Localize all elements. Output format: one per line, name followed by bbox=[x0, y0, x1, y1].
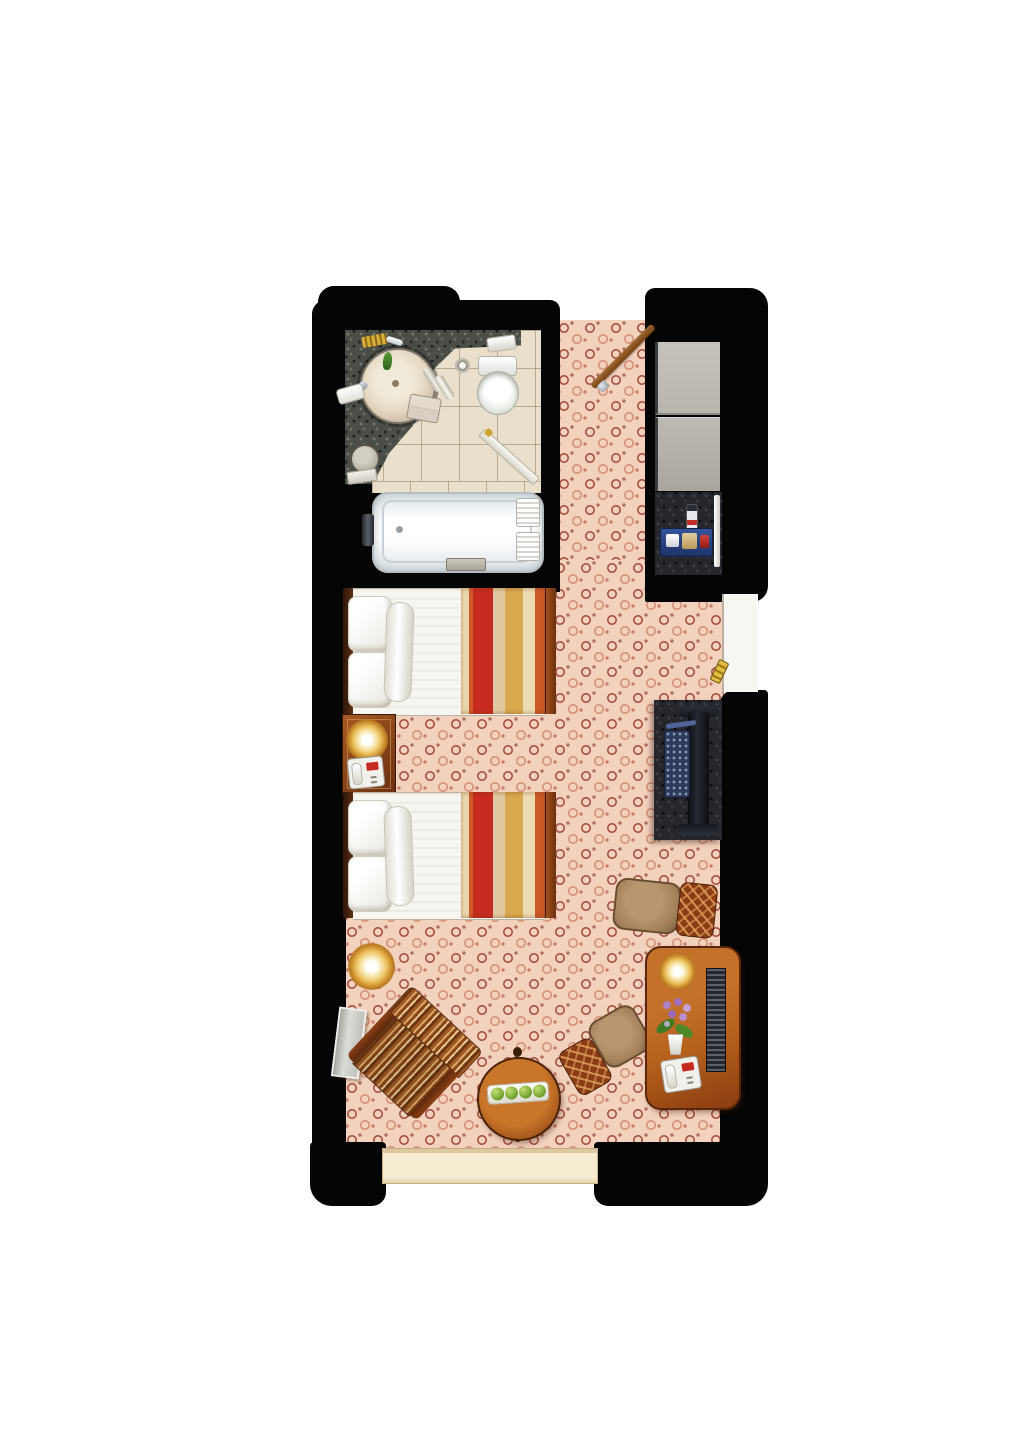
tub-tray bbox=[446, 558, 486, 571]
orchid-flowers bbox=[660, 998, 694, 1032]
bed-1-runner bbox=[461, 588, 545, 714]
apple-1 bbox=[491, 1087, 505, 1101]
closet-door-upper bbox=[655, 342, 720, 415]
tv-keyboard bbox=[664, 730, 690, 798]
bed-2-footboard bbox=[545, 792, 556, 918]
folded-towels bbox=[406, 393, 442, 423]
nightstand-lamp bbox=[346, 719, 388, 761]
tub-faucet bbox=[362, 514, 374, 546]
tv-cap-bottom bbox=[678, 824, 718, 835]
tray-red-can bbox=[700, 535, 709, 548]
tub-towel-1 bbox=[516, 498, 540, 527]
tub-towel-2 bbox=[516, 532, 540, 561]
minibar-tray bbox=[660, 528, 713, 557]
wall-bottom-left-block bbox=[310, 1142, 386, 1206]
bed-1-footboard bbox=[545, 588, 556, 714]
side-chair-back bbox=[675, 882, 718, 940]
tv-screen-bar bbox=[688, 712, 709, 830]
connecting-door bbox=[722, 594, 758, 692]
side-chair-seat bbox=[611, 877, 682, 936]
desk-phone bbox=[660, 1055, 703, 1094]
entry-hall-carpet bbox=[556, 320, 648, 586]
bed-2-bolster bbox=[383, 806, 414, 907]
tub-drain bbox=[396, 526, 403, 533]
minibar-door bbox=[714, 495, 720, 567]
louvered-bench bbox=[706, 968, 726, 1072]
apple-2 bbox=[505, 1086, 519, 1100]
bed-1 bbox=[343, 588, 555, 714]
apple-4 bbox=[532, 1084, 546, 1098]
desk-lamp bbox=[659, 953, 696, 990]
sink-drain bbox=[392, 380, 399, 387]
bed-2-runner bbox=[461, 792, 545, 918]
bed-1-bolster bbox=[383, 602, 414, 703]
nightstand-phone bbox=[346, 755, 385, 790]
tray-cup bbox=[666, 534, 679, 547]
bed-2 bbox=[343, 792, 555, 918]
closet-door-lower bbox=[655, 417, 720, 491]
floor-plan bbox=[0, 0, 1024, 1448]
floor-lamp bbox=[348, 943, 395, 990]
tray-snack-box bbox=[682, 533, 697, 549]
window-sill bbox=[382, 1148, 598, 1184]
table-knob-top bbox=[513, 1047, 522, 1057]
side-chair bbox=[609, 873, 720, 942]
apple-3 bbox=[519, 1085, 533, 1099]
toilet-bowl bbox=[477, 371, 519, 415]
bathtub-inner-rim bbox=[382, 500, 532, 563]
toilet-paper-roll bbox=[455, 358, 470, 373]
